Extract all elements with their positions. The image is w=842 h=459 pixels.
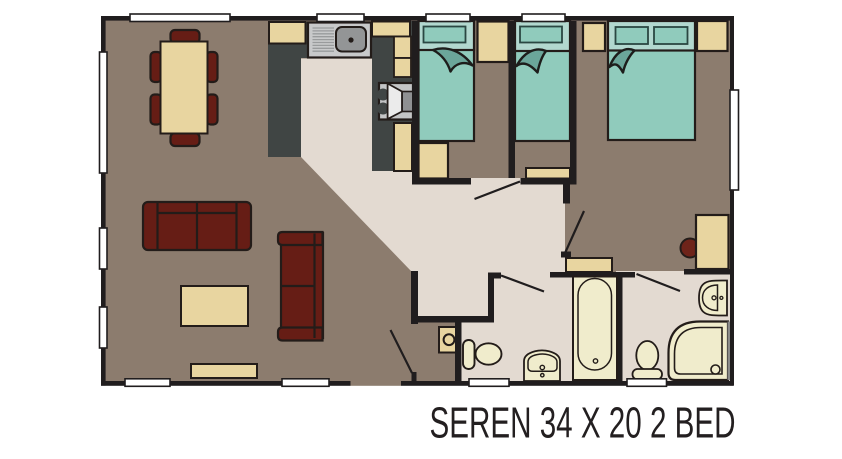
svg-text:SEREN 34 X 20 2 BED: SEREN 34 X 20 2 BED xyxy=(430,399,736,448)
